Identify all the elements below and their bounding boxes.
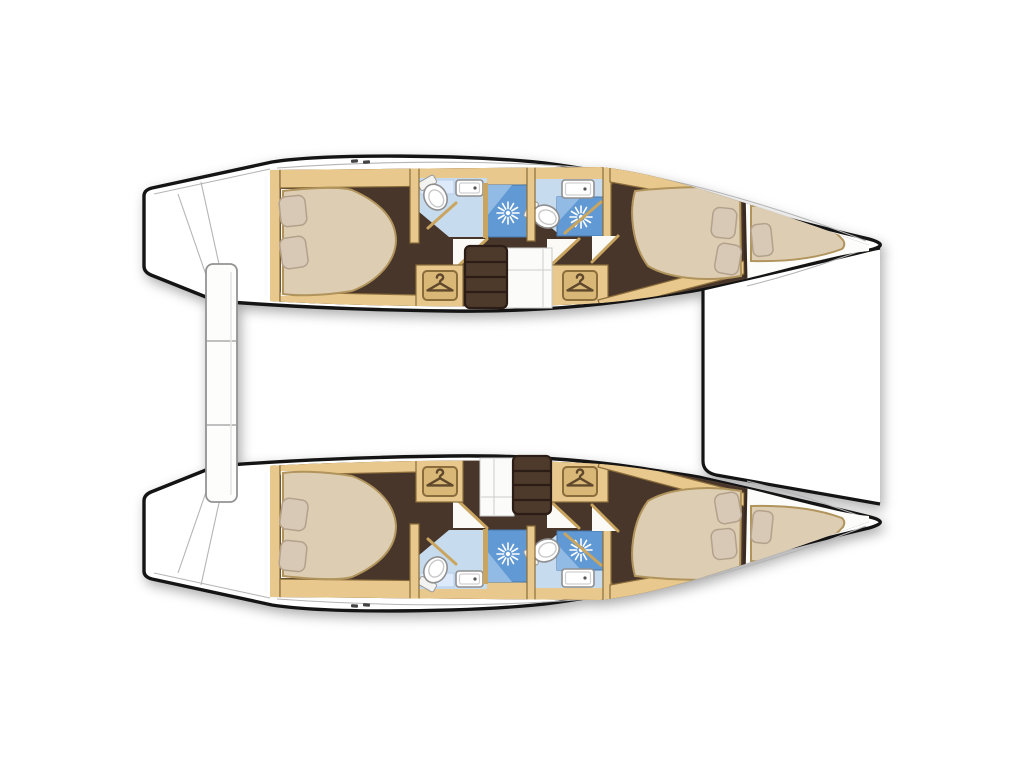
trampoline-deck bbox=[703, 248, 880, 504]
white-landing-starboard bbox=[480, 458, 514, 516]
catamaran bbox=[144, 156, 905, 611]
companionway-steps-port bbox=[465, 246, 507, 308]
gangway-plank bbox=[206, 264, 237, 502]
floorplan-canvas: Four-cabin sailing catamaran deck plan, … bbox=[0, 0, 1024, 768]
catamaran-floorplan: Four-cabin sailing catamaran deck plan, … bbox=[0, 0, 1024, 768]
companionway-steps-starboard bbox=[513, 456, 551, 514]
white-landing-port bbox=[506, 248, 552, 308]
